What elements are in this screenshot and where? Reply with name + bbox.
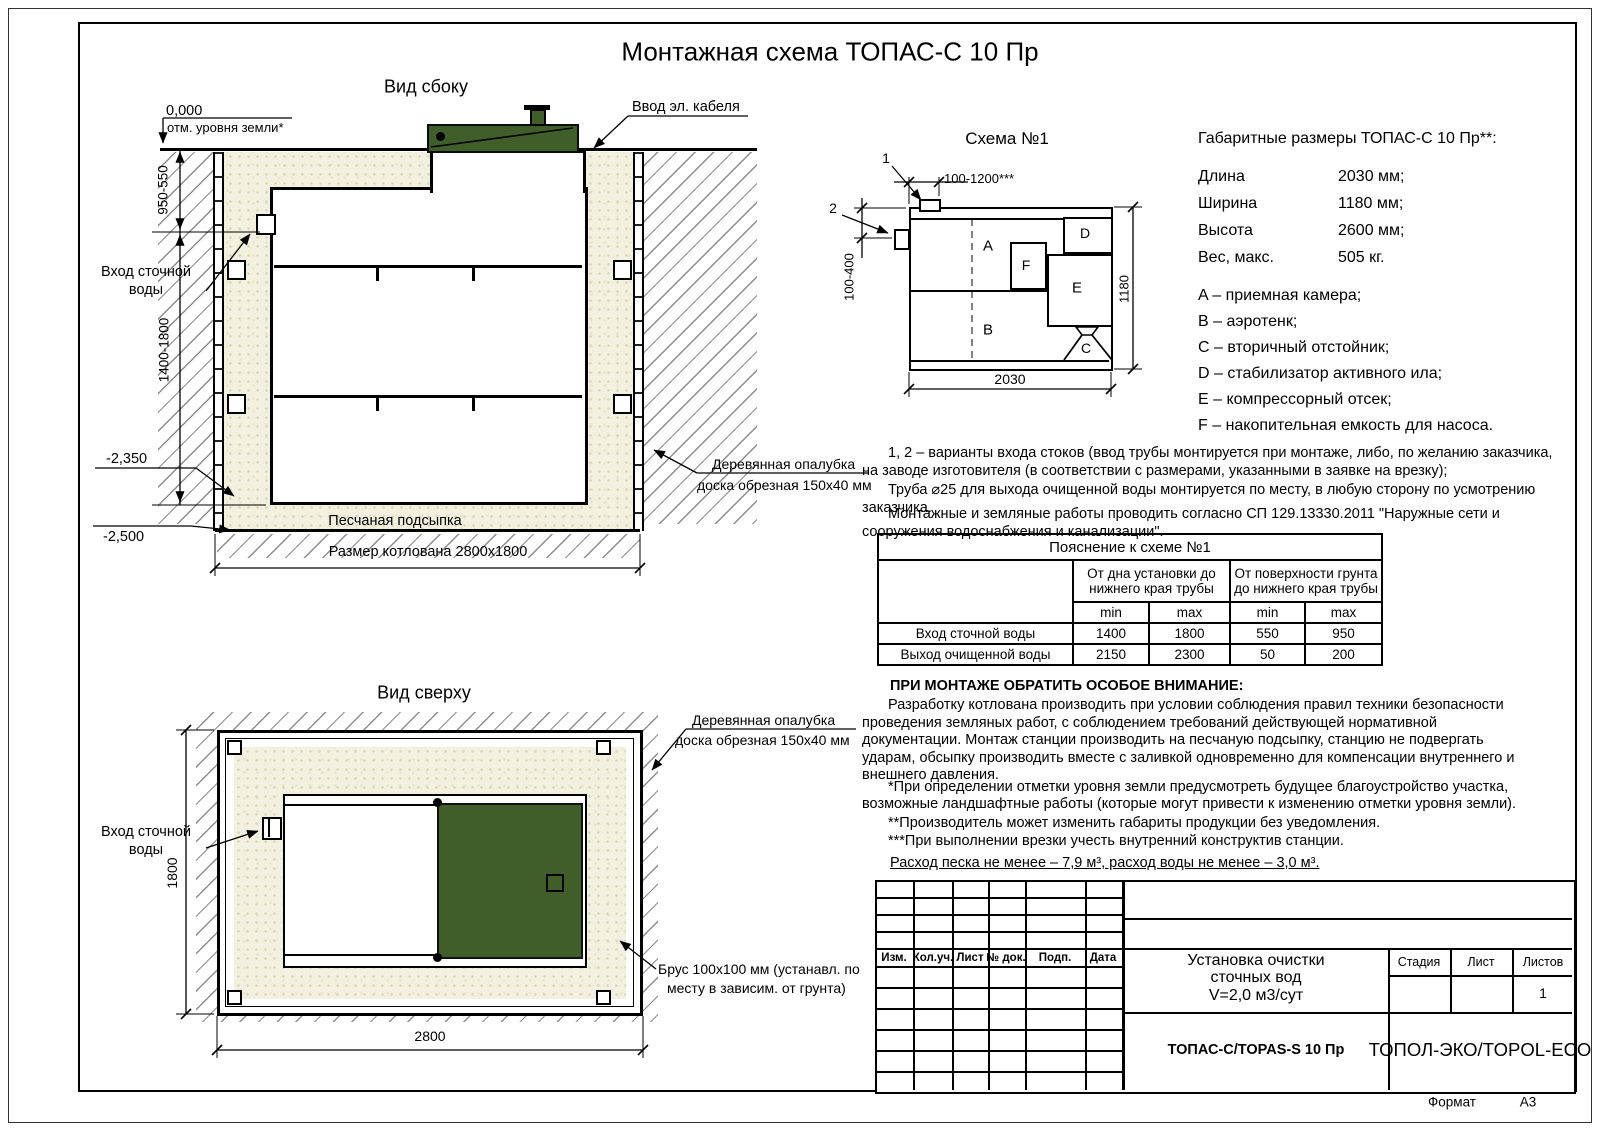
table-row: Вход сточной воды 1400 1800 550 950: [878, 623, 1382, 644]
row-value: 950: [1305, 623, 1382, 644]
specs-heading: Габаритные размеры ТОПАС-С 10 Пр**:: [1198, 130, 1497, 148]
tb-line: [1124, 948, 1572, 950]
format-value: А3: [1520, 1095, 1537, 1110]
elevation-zero: 0,000: [166, 103, 202, 120]
tb-line: [1388, 948, 1390, 1090]
pit-size-label: Размер котлована 2800x1800: [329, 544, 528, 560]
formwork-label-line2: доска обрезная 150x40 мм: [697, 477, 872, 493]
tb-col-list: Лист: [956, 952, 983, 964]
tb-line: [875, 897, 1122, 899]
row-value: 1400: [1073, 623, 1149, 644]
inlet-label-line2: воды: [129, 282, 163, 298]
tb-line: [1122, 880, 1125, 1090]
legend-item: F – накопительная емкость для насоса.: [1198, 417, 1493, 435]
schema-line: [911, 360, 1109, 362]
dim-1400-1800: 1400-1800: [157, 318, 172, 383]
partition-tab: [376, 268, 379, 281]
row-value: 2300: [1149, 644, 1230, 665]
schema-partition-ab: [911, 290, 1047, 292]
row-value: 2150: [1073, 644, 1149, 665]
corner-beam: [596, 990, 611, 1005]
top-inlet-line: [268, 818, 270, 837]
elevation-2500: -2,500: [103, 529, 144, 546]
schema-dim-height: 1180: [1117, 275, 1132, 303]
attention-note-1: *При определении отметки уровня земли пр…: [862, 779, 1552, 813]
wall-bracket: [227, 394, 246, 414]
drawing-page: Монтажная схема ТОПАС-С 10 Пр Вид сбоку …: [0, 0, 1600, 1131]
tb-col-data: Дата: [1090, 952, 1117, 964]
tb-company: ТОПОЛ-ЭКО/TOPOL-ECO: [1369, 1039, 1592, 1061]
attention-paragraph: Разработку котлована производить при усл…: [862, 697, 1540, 785]
inlet-label-line2: воды: [129, 842, 163, 858]
side-view-title: Вид сбоку: [384, 77, 468, 98]
tb-line: [875, 914, 1122, 916]
row-value: 50: [1230, 644, 1305, 665]
tb-col-izm: Изм.: [881, 952, 906, 964]
pit-bottom-line: [215, 529, 640, 532]
attention-note-2: **Производитель может изменить габариты …: [862, 815, 1552, 833]
tb-line: [1388, 975, 1572, 977]
tb-line: [875, 931, 1122, 933]
tb-stage-label: Стадия: [1398, 955, 1441, 969]
explanation-table: Пояснение к схеме №1 От дна установки до…: [877, 533, 1383, 666]
table-row: Выход очищенной воды 2150 2300 50 200: [878, 644, 1382, 665]
legend-item: E – компрессорный отсек;: [1198, 391, 1392, 409]
tb-doc-title-line1: Установка очистки: [1187, 952, 1324, 970]
top-formwork-label-line2: доска обрезная 150x40 мм: [675, 732, 850, 748]
tb-line: [875, 1008, 1122, 1010]
tb-line: [1450, 948, 1452, 1012]
inlet-label-line1: Вход сточной: [101, 264, 191, 280]
tb-line: [875, 1029, 1122, 1031]
dim-950-550: 950-550: [156, 165, 171, 215]
dim-2800: 2800: [414, 1028, 445, 1044]
tb-doc-title-line2: сточных вод: [1210, 969, 1301, 987]
tb-line: [913, 880, 915, 1090]
schema-title: Схема №1: [965, 129, 1049, 149]
compartment-a: A: [983, 238, 993, 255]
table-group2: От поверхности грунта до нижнего края тр…: [1230, 560, 1382, 602]
legend-item: A – приемная камера;: [1198, 287, 1361, 305]
tb-line: [1124, 1012, 1572, 1014]
consumption-note: Расход песка не менее – 7,9 м³, расход в…: [890, 855, 1319, 872]
tb-line: [988, 880, 990, 1090]
table-max: max: [1305, 602, 1382, 623]
tank-body: [270, 187, 588, 505]
spec-value: 2600 мм;: [1338, 222, 1404, 240]
note-paragraph-1: 1, 2 – варианты входа стоков (ввод трубы…: [862, 445, 1557, 480]
row-value: 550: [1230, 623, 1305, 644]
lid-hinge-dot: [433, 953, 442, 962]
dim-1800: 1800: [164, 857, 180, 888]
lid-hinge-dot: [433, 798, 442, 807]
schema-variant-1: 1: [882, 150, 890, 166]
tb-line: [1025, 880, 1027, 1090]
tb-line: [875, 948, 1122, 950]
spec-label: Вес, макс.: [1198, 249, 1274, 267]
tank-lid: [427, 124, 579, 153]
corner-beam: [596, 740, 611, 755]
tb-sheet-label: Лист: [1467, 955, 1494, 969]
elevation-2350: -2,350: [106, 451, 147, 468]
corner-beam: [227, 740, 242, 755]
table-group1: От дна установки до нижнего края трубы: [1073, 560, 1230, 602]
tb-line: [952, 880, 954, 1090]
table-title: Пояснение к схеме №1: [878, 534, 1382, 560]
partition-tab: [472, 398, 475, 411]
wall-bracket: [227, 260, 246, 280]
legend-item: D – стабилизатор активного ила;: [1198, 365, 1442, 383]
wall-bracket: [613, 260, 632, 280]
schema-dim-left: 100-400: [842, 253, 857, 301]
spec-label: Высота: [1198, 222, 1253, 240]
compartment-c: C: [1081, 340, 1091, 356]
tb-sheets-label: Листов: [1523, 955, 1564, 969]
beam-label-line2: месту в зависим. от грунта): [667, 980, 846, 996]
attention-note-3: ***При выполнении врезки учесть внутренн…: [862, 833, 1552, 851]
lid-vent-square: [546, 874, 564, 892]
spec-value: 505 кг.: [1338, 249, 1384, 267]
compartment-b: B: [983, 322, 993, 339]
table-group1-line1: От дна установки до: [1087, 566, 1216, 581]
table-min: min: [1230, 602, 1305, 623]
elevation-zero-note: отм. уровня земли*: [167, 121, 284, 136]
wall-bracket: [613, 394, 632, 414]
row-value: 200: [1305, 644, 1382, 665]
sand-label: Песчаная подсыпка: [328, 513, 461, 529]
spec-value: 2030 мм;: [1338, 168, 1404, 186]
table-group2-line2: до нижнего края трубы: [1234, 581, 1378, 596]
tank-partition-2: [274, 395, 582, 398]
tb-col-podp: Подп.: [1039, 952, 1072, 964]
table-min: min: [1073, 602, 1149, 623]
beam-label-line1: Брус 100x100 мм (устанавл. по: [658, 961, 860, 977]
schema-dim-width: 2030: [994, 371, 1025, 387]
table-group1-line2: нижнего края трубы: [1089, 581, 1214, 596]
tb-line: [1124, 918, 1572, 920]
formwork-board-right: [633, 152, 644, 531]
schema-dim-top: 100-1200***: [944, 172, 1014, 187]
compartment-e: E: [1072, 280, 1082, 297]
table-corner-cell: [878, 560, 1073, 623]
formwork-label-line1: Деревянная опалубка: [712, 456, 855, 472]
table-max: max: [1149, 602, 1230, 623]
lid-vent-stem: [530, 109, 546, 126]
row-name: Выход очищенной воды: [878, 644, 1073, 665]
spec-label: Длина: [1198, 168, 1245, 186]
legend-item: B – аэротенк;: [1198, 313, 1297, 331]
inlet-label-line1: Вход сточной: [101, 824, 191, 840]
tank-partition-1: [274, 265, 582, 268]
page-title: Монтажная схема ТОПАС-С 10 Пр: [621, 37, 1038, 68]
row-name: Вход сточной воды: [878, 623, 1073, 644]
schema-inlet-2: [894, 229, 910, 250]
tb-doc-title-line3: V=2,0 м3/сут: [1209, 987, 1303, 1005]
compartment-f: F: [1022, 257, 1031, 273]
tb-line: [875, 1050, 1122, 1052]
tb-line: [875, 1071, 1122, 1073]
partition-tab: [376, 398, 379, 411]
formwork-board-left: [213, 152, 224, 531]
partition-tab: [472, 268, 475, 281]
corner-beam: [227, 990, 242, 1005]
top-view-title: Вид сверху: [377, 683, 471, 704]
tb-col-koluch: Кол.уч.: [913, 952, 954, 964]
format-label: Формат: [1428, 1095, 1476, 1110]
tb-line: [875, 966, 1122, 968]
table-group2-line1: От поверхности грунта: [1234, 566, 1377, 581]
legend-item: C – вторичный отстойник;: [1198, 339, 1389, 357]
row-value: 1800: [1149, 623, 1230, 644]
spec-value: 1180 мм;: [1338, 195, 1403, 213]
top-formwork-label-line1: Деревянная опалубка: [692, 712, 835, 728]
schema-inlet-1: [919, 199, 941, 212]
tb-model: ТОПАС-С/TOPAS-S 10 Пр: [1168, 1042, 1345, 1058]
compartment-d: D: [1080, 225, 1090, 241]
lid-hinge-dot: [436, 132, 445, 141]
inlet-stub: [256, 214, 276, 235]
tb-line: [875, 987, 1122, 989]
spec-label: Ширина: [1198, 195, 1257, 213]
tank-joint-patch: [435, 185, 578, 193]
schema-variant-2: 2: [829, 200, 837, 216]
tb-line: [1085, 880, 1087, 1090]
top-inlet-stub: [262, 817, 282, 840]
tb-col-ndok: № док.: [986, 952, 1025, 964]
cable-entry-label: Ввод эл. кабеля: [632, 99, 740, 116]
attention-heading: ПРИ МОНТАЖЕ ОБРАТИТЬ ОСОБОЕ ВНИМАНИЕ:: [890, 678, 1243, 695]
tb-sheets-value: 1: [1539, 985, 1547, 1001]
tb-line: [1512, 948, 1514, 1012]
